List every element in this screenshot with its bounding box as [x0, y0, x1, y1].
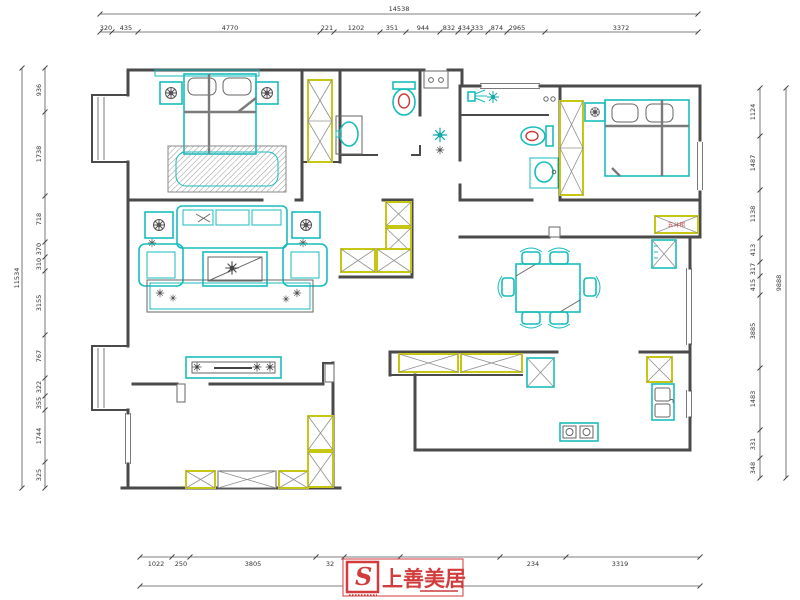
- plant-icon: [193, 363, 202, 372]
- lamp-icon: [591, 108, 600, 117]
- bay-window-top: [92, 95, 128, 162]
- stove-icon: [560, 423, 598, 441]
- lamp-icon: [166, 88, 177, 99]
- sink-icon: [340, 122, 358, 146]
- dimension-label: 767: [35, 350, 43, 362]
- plant-icon: [293, 289, 301, 297]
- dimension-label: 944: [417, 24, 429, 32]
- logo-mark: S: [355, 562, 372, 591]
- dimension-label: 9888: [775, 275, 783, 292]
- entry-cabinets: [341, 202, 411, 272]
- dimension-label: 32: [326, 560, 334, 568]
- dimension-label: 4770: [222, 24, 239, 32]
- lamp-icon: [301, 220, 312, 231]
- dimension-label: 3885: [749, 323, 757, 340]
- plant-icon: [487, 91, 499, 103]
- dining-room: 五斗柜: [498, 216, 698, 328]
- dimension-label: 3155: [35, 295, 43, 312]
- plant-icon: [253, 363, 262, 372]
- dimension-label: 234: [527, 560, 539, 568]
- floor-plan-drawing: 1453832043547702211202351944832434333874…: [0, 0, 800, 600]
- pillow: [223, 78, 251, 95]
- lamp-icon: [262, 88, 273, 99]
- dimension-label: 325: [35, 469, 43, 481]
- dimension-label: 1202: [348, 24, 365, 32]
- dimension-label: 310: [35, 258, 43, 270]
- dimension-label: 348: [749, 462, 757, 474]
- dimension-label: 1483: [749, 391, 757, 408]
- dimension-label: 11534: [13, 268, 21, 289]
- sofa: [177, 206, 287, 248]
- bay-window-bottom: [92, 346, 128, 410]
- plant-icon: [433, 128, 447, 142]
- chest-cabinet: 五斗柜: [655, 216, 698, 233]
- dimension-label: 1138: [749, 206, 757, 223]
- chest-cabinet-label: 五斗柜: [667, 221, 685, 229]
- dimension-label: 331: [749, 438, 757, 450]
- bedroom-2: [560, 100, 689, 195]
- dimension-label: 317: [749, 263, 757, 275]
- dimension-label: 832: [443, 24, 455, 32]
- wardrobe: [308, 80, 332, 162]
- pillow: [646, 104, 673, 122]
- dining-table: [516, 264, 580, 312]
- tv-cabinet: [186, 357, 281, 378]
- brand-logo: S 上善美居: [343, 559, 466, 596]
- dimension-label: 221: [321, 24, 333, 32]
- dining-chair: [502, 278, 514, 296]
- plant-icon: [156, 289, 164, 297]
- plant-icon: [148, 239, 156, 247]
- dimension-label: 355: [35, 397, 43, 409]
- dimension-label: 3372: [613, 24, 630, 32]
- dimension-label: 3319: [612, 560, 629, 568]
- dining-chair: [522, 312, 540, 324]
- dimension-label: 936: [35, 84, 43, 96]
- dining-chair: [584, 278, 596, 296]
- dining-chair: [550, 312, 568, 324]
- dimension-label: 1738: [35, 146, 43, 163]
- door-jamb: [549, 227, 560, 237]
- living-room: [139, 206, 327, 378]
- plant-icon: [282, 295, 289, 302]
- dimension-label: 351: [386, 24, 398, 32]
- kitchen: [399, 354, 674, 441]
- dining-chair: [550, 252, 568, 264]
- master-bedroom: [160, 74, 332, 192]
- dimension-label: 333: [471, 24, 483, 32]
- dimension-label: 874: [491, 24, 503, 32]
- plant-icon: [436, 146, 444, 154]
- dimension-label: 1487: [749, 155, 757, 172]
- pillow: [612, 104, 638, 122]
- pillow: [188, 78, 216, 95]
- plant-icon: [266, 363, 275, 372]
- bathroom-1: [336, 82, 447, 154]
- dimension-label: 415: [749, 279, 757, 291]
- sink-icon: [530, 158, 558, 188]
- dimension-label: 14538: [389, 5, 410, 13]
- dimension-label: 3805: [245, 560, 262, 568]
- toilet-icon: [393, 82, 415, 115]
- shower-icon: [468, 92, 475, 101]
- bedroom-3: [186, 416, 333, 488]
- wardrobe: [560, 101, 583, 195]
- dining-chair: [522, 252, 540, 264]
- plant-icon: [299, 239, 307, 247]
- dimension-label: 250: [175, 560, 187, 568]
- dimension-label: 2965: [509, 24, 526, 32]
- hall-cabinet: [652, 240, 676, 268]
- logo-brand-text: 上善美居: [382, 567, 466, 591]
- toilet-icon: [521, 126, 553, 146]
- dimension-label: 1124: [749, 104, 757, 121]
- rug: [168, 146, 286, 192]
- door-jamb: [177, 384, 185, 402]
- kitchen-sink-icon: [652, 384, 674, 420]
- dimension-label: 413: [749, 244, 757, 256]
- dimension-label: 718: [35, 213, 43, 225]
- dimension-label: 370: [35, 243, 43, 255]
- dimension-label: 1744: [35, 428, 43, 445]
- bathroom-2: [468, 90, 558, 188]
- dimension-label: 1022: [148, 560, 165, 568]
- dimension-label: 322: [35, 381, 43, 393]
- floor-plan-canvas: 1453832043547702211202351944832434333874…: [0, 0, 800, 600]
- plant-icon: [169, 294, 176, 301]
- entry-door-frame: [325, 364, 334, 382]
- lamp-icon: [154, 220, 165, 231]
- dimension-label: 435: [120, 24, 132, 32]
- living-rug: [147, 280, 313, 312]
